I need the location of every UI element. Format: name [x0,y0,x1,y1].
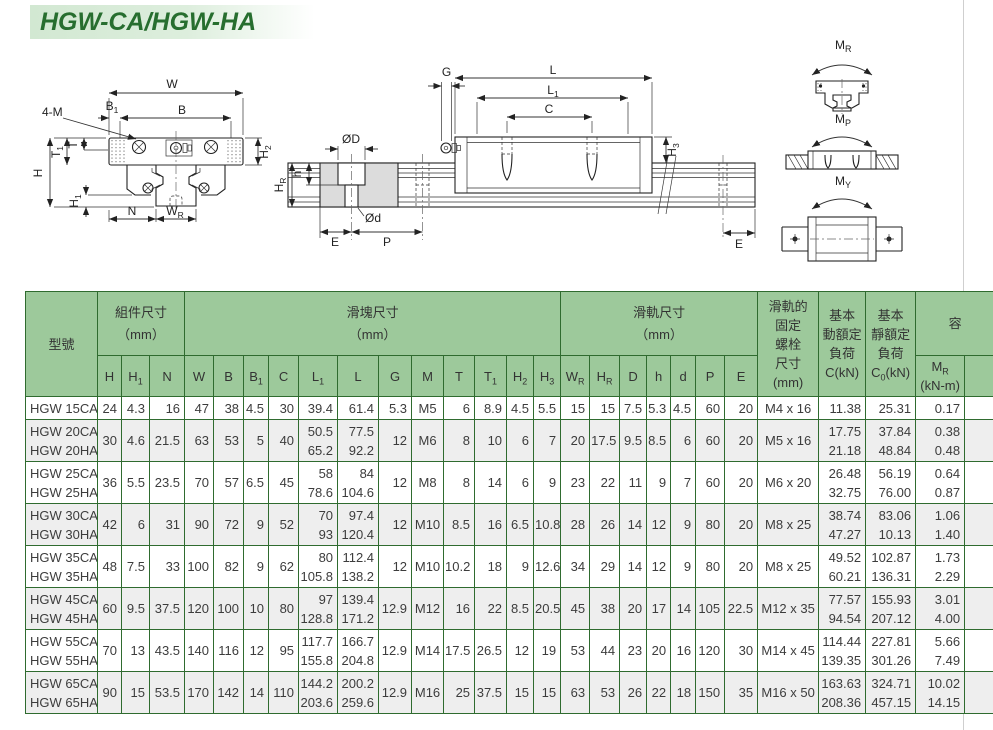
cell-dim: 9 [244,546,269,588]
cell-dim: 50.565.2 [299,420,338,462]
dim-label-n: N [128,204,137,218]
cell-dim: 52 [269,504,299,546]
cell-dim: 17.5 [444,630,475,672]
cell-dim: 53.5 [150,672,185,714]
cell-dim: 53 [561,630,590,672]
dim-label-b: B [178,103,186,117]
cell-dynamic-load: 114.44139.35 [819,630,866,672]
cell-dim: 62 [269,546,299,588]
grease-nipple-icon [166,140,192,156]
cell-dim: 34 [561,546,590,588]
side-view-drawing: G L L1 C H3 ØD h HR Ød E P E [275,50,780,265]
cell-bolt: M8 x 25 [758,546,819,588]
cell-dim: 90 [98,672,122,714]
cell-dim: 70 [98,630,122,672]
cell-dim: 15 [590,397,620,420]
column-header: M [412,356,444,397]
cell-dim: 17.5 [590,420,620,462]
cell-dim: 45 [269,462,299,504]
cell-dim: 33 [150,546,185,588]
page-title: HGW-CA/HGW-HA [30,8,256,37]
block-cross-section [109,131,243,211]
cell-dim: M16 [412,672,444,714]
cell-dim: 4.5 [671,397,696,420]
cell-moment-mr: 0.640.87 [916,462,965,504]
cell-cut [965,546,993,588]
cell-dim: 14 [620,504,647,546]
header-assembly-group: 組件尺寸（mm） [98,292,185,356]
cell-dim: 15 [561,397,590,420]
cell-dim: M14 [412,630,444,672]
cell-dim: 48 [98,546,122,588]
cell-model: HGW 25CAHGW 25HA [26,462,98,504]
spec-table: 型號 組件尺寸（mm） 滑塊尺寸（mm） 滑軌尺寸（mm） 滑軌的固定 螺栓尺寸… [25,291,993,714]
cell-dim: 26 [620,672,647,714]
table-row: HGW 25CAHGW 25HA365.523.570576.5455878.6… [26,462,993,504]
header-group-row: 型號 組件尺寸（mm） 滑塊尺寸（mm） 滑軌尺寸（mm） 滑軌的固定 螺栓尺寸… [26,292,993,356]
cell-dim: 4.6 [122,420,150,462]
cell-dim: 7 [534,420,561,462]
dim-label-e-right: E [735,237,743,251]
cell-dim: 8.5 [507,588,534,630]
cell-dim: 18 [475,546,507,588]
header-moment-group: 容 [916,292,993,356]
cell-dim: 22 [590,462,620,504]
dim-label-g: G [442,65,451,79]
cell-dim: 43.5 [150,630,185,672]
cell-dim: M10 [412,546,444,588]
cell-dim: 16 [671,630,696,672]
header-dynamic-load: 基本動額定 負荷C(kN) [819,292,866,397]
cell-dim: 9.5 [122,588,150,630]
cell-dim: 77.592.2 [338,420,379,462]
cell-moment-mr: 1.732.29 [916,546,965,588]
cell-dim: 10 [475,420,507,462]
cell-bolt: M8 x 25 [758,504,819,546]
cell-dim: 20 [620,588,647,630]
cell-dim: 14 [475,462,507,504]
cell-dim: 20 [725,546,758,588]
cell-dim: 57 [214,462,244,504]
cell-dim: 20.5 [534,588,561,630]
cell-cut [965,630,993,672]
cell-dim: 4.3 [122,397,150,420]
cell-dynamic-load: 38.7447.27 [819,504,866,546]
cell-dim: 70 [185,462,214,504]
cell-dim: 6 [671,420,696,462]
cell-static-load: 155.93207.12 [866,588,916,630]
cell-dim: 12 [647,546,671,588]
cell-dim: 95 [269,630,299,672]
cell-dim: 6.5 [244,462,269,504]
table-row: HGW 15CA244.31647384.53039.461.45.3M568.… [26,397,993,420]
cell-dim: 24 [98,397,122,420]
cell-dim: 9 [534,462,561,504]
column-header: H1 [122,356,150,397]
cell-dim: 21.5 [150,420,185,462]
dim-label-l1: L1 [547,83,559,99]
cell-bolt: M6 x 20 [758,462,819,504]
column-header-mr: MR(kN-m) [916,356,965,397]
cell-dim: 80 [696,546,725,588]
cell-dim: 26 [590,504,620,546]
cell-dim: 44 [590,630,620,672]
cell-dim: 20 [725,462,758,504]
cell-bolt: M16 x 50 [758,672,819,714]
cell-dim: 8.9 [475,397,507,420]
cell-dim: 36 [98,462,122,504]
cell-dim: 9 [671,546,696,588]
cell-dim: 5878.6 [299,462,338,504]
dim-label-dia-d-small: Ød [365,211,381,225]
cell-dim: 9 [244,504,269,546]
cell-dim: 97128.8 [299,588,338,630]
cell-dynamic-load: 17.7521.18 [819,420,866,462]
cell-dim: 25 [444,672,475,714]
cell-dim: 12.9 [379,588,412,630]
cell-dim: 13 [122,630,150,672]
cell-dim: 20 [725,420,758,462]
cell-moment-mr: 0.380.48 [916,420,965,462]
column-header: H2 [507,356,534,397]
cell-dim: 144.2203.6 [299,672,338,714]
cell-dim: 112.4138.2 [338,546,379,588]
cell-dim: 37.5 [475,672,507,714]
cell-dim: 16 [150,397,185,420]
moment-my-diagram: MY [782,174,902,261]
cell-dim: 45 [561,588,590,630]
cell-static-load: 324.71457.15 [866,672,916,714]
cell-dim: 6 [507,462,534,504]
column-header: H [98,356,122,397]
cell-dim: 7 [671,462,696,504]
column-header: B1 [244,356,269,397]
dim-label-b1: B1 [106,99,119,115]
cell-model: HGW 20CAHGW 20HA [26,420,98,462]
cell-cut [965,672,993,714]
cell-dim: 22.5 [725,588,758,630]
dim-label-p: P [383,235,391,249]
cell-dim: 12 [379,420,412,462]
cell-dim: 80 [269,588,299,630]
dim-label-l: L [550,63,557,77]
cell-dim: 20 [561,420,590,462]
cell-dim: 11 [620,462,647,504]
title-bar: HGW-CA/HGW-HA [30,5,315,39]
rail-section-cut [320,154,398,240]
column-header: L1 [299,356,338,397]
cell-bolt: M4 x 16 [758,397,819,420]
cell-dim: 150 [696,672,725,714]
cell-dim: 23.5 [150,462,185,504]
cell-dim: M8 [412,462,444,504]
cell-dim: 10 [244,588,269,630]
cell-dim: 39.4 [299,397,338,420]
cell-dim: 6 [444,397,475,420]
cell-static-load: 227.81301.26 [866,630,916,672]
cell-dim: 12 [379,504,412,546]
moment-mp-label: MP [835,112,851,128]
cell-dim: 120 [185,588,214,630]
column-header: h [647,356,671,397]
cell-dim: 80105.8 [299,546,338,588]
cell-dynamic-load: 49.5260.21 [819,546,866,588]
front-view-drawing: W B B1 4-M H T1 T H1 H2 N WR [20,58,270,253]
cell-cut [965,420,993,462]
block-side [441,137,652,193]
cell-dim: 20 [725,397,758,420]
table-row: HGW 20CAHGW 20HA304.621.5635354050.565.2… [26,420,993,462]
cell-dim: 53 [590,672,620,714]
cell-model: HGW 45CAHGW 45HA [26,588,98,630]
cell-dynamic-load: 26.4832.75 [819,462,866,504]
column-header: C [269,356,299,397]
cell-dim: 22 [475,588,507,630]
cell-cut [965,504,993,546]
dim-label-t: T [66,141,80,149]
dim-label-dia-d: ØD [342,132,360,146]
cell-dim: 170 [185,672,214,714]
cell-dim: 60 [696,397,725,420]
table-row: HGW 30CAHGW 30HA426319072952709397.4120.… [26,504,993,546]
column-header: T [444,356,475,397]
cell-model: HGW 55CAHGW 55HA [26,630,98,672]
cell-moment-mr: 0.17 [916,397,965,420]
column-header: H3 [534,356,561,397]
cell-dim: 110 [269,672,299,714]
break-marks [658,156,676,214]
front-dimensions: W B B1 4-M H T1 T H1 H2 N WR [31,77,273,222]
cell-dim: 23 [561,462,590,504]
cell-dim: 100 [214,588,244,630]
column-header: B [214,356,244,397]
cell-dim: 166.7204.8 [338,630,379,672]
dim-label-w: W [166,77,178,91]
cell-dim: 42 [98,504,122,546]
cell-moment-mr: 1.061.40 [916,504,965,546]
column-header: WR [561,356,590,397]
moment-mp-diagram: MP [786,112,898,169]
cell-dim: 14 [244,672,269,714]
cell-dim: 4.5 [244,397,269,420]
cell-dim: 31 [150,504,185,546]
cell-cut [965,462,993,504]
cell-dim: 116 [214,630,244,672]
cell-dim: 12.9 [379,630,412,672]
cell-dim: 4.5 [507,397,534,420]
cell-dim: M10 [412,504,444,546]
dim-label-e-left: E [331,235,339,249]
cell-dim: 6 [507,420,534,462]
cell-dim: 19 [534,630,561,672]
cell-dim: 8 [444,462,475,504]
cell-dim: 14 [671,588,696,630]
cell-dim: 60 [98,588,122,630]
cell-dim: 35 [725,672,758,714]
cell-static-load: 25.31 [866,397,916,420]
spec-table-container: 型號 組件尺寸（mm） 滑塊尺寸（mm） 滑軌尺寸（mm） 滑軌的固定 螺栓尺寸… [25,291,993,714]
cell-dim: 9 [647,462,671,504]
table-row: HGW 65CAHGW 65HA901553.517014214110144.2… [26,672,993,714]
cell-dim: 105 [696,588,725,630]
cell-dim: 12.6 [534,546,561,588]
cell-dim: 8.5 [647,420,671,462]
cell-dim: 30 [269,397,299,420]
cell-dim: 12 [244,630,269,672]
cell-dim: 12 [379,546,412,588]
cell-static-load: 37.8448.84 [866,420,916,462]
cell-dim: 10.2 [444,546,475,588]
cell-dim: 20 [725,504,758,546]
dim-label-h1: H1 [67,194,83,208]
cell-dim: 200.2259.6 [338,672,379,714]
cell-bolt: M12 x 35 [758,588,819,630]
cell-dim: 117.7155.8 [299,630,338,672]
cell-dim: M5 [412,397,444,420]
column-header: W [185,356,214,397]
cell-dim: 139.4171.2 [338,588,379,630]
cell-dim: M6 [412,420,444,462]
column-header: P [696,356,725,397]
cell-dim: 7093 [299,504,338,546]
cell-dim: 12 [647,504,671,546]
cell-dim: 60 [696,462,725,504]
column-header: G [379,356,412,397]
cell-dim: M12 [412,588,444,630]
cell-dim: 40 [269,420,299,462]
cell-dim: 38 [214,397,244,420]
cell-dim: 20 [647,630,671,672]
cell-static-load: 83.0610.13 [866,504,916,546]
cell-cut [965,588,993,630]
cell-dim: 72 [214,504,244,546]
cell-dim: 17 [647,588,671,630]
header-model: 型號 [26,292,98,397]
cell-dim: 12 [507,630,534,672]
cell-dim: 37.5 [150,588,185,630]
column-header: HR [590,356,620,397]
cell-dim: 9.5 [620,420,647,462]
column-header: L [338,356,379,397]
cell-dim: 6.5 [507,504,534,546]
cell-dim: 80 [696,504,725,546]
cell-dim: 8.5 [444,504,475,546]
header-bolt: 滑軌的固定 螺栓尺寸 (mm) [758,292,819,397]
cell-dim: 15 [122,672,150,714]
cell-dim: 82 [214,546,244,588]
cell-dim: 7.5 [620,397,647,420]
cell-model: HGW 30CAHGW 30HA [26,504,98,546]
dim-label-c: C [545,102,554,116]
cell-model: HGW 65CAHGW 65HA [26,672,98,714]
cell-dim: 53 [214,420,244,462]
cell-dim: 142 [214,672,244,714]
cell-moment-mr: 10.0214.15 [916,672,965,714]
cell-cut [965,397,993,420]
cell-dim: 9 [507,546,534,588]
cell-dynamic-load: 77.5794.54 [819,588,866,630]
cell-dim: 26.5 [475,630,507,672]
cell-dynamic-load: 163.63208.36 [819,672,866,714]
cell-moment-mr: 5.667.49 [916,630,965,672]
cell-dim: 90 [185,504,214,546]
cell-dim: 5 [244,420,269,462]
catalog-page: { "page": { "title": "HGW-CA/HGW-HA" }, … [0,0,993,730]
cell-dim: 140 [185,630,214,672]
table-row: HGW 45CAHGW 45HA609.537.5120100108097128… [26,588,993,630]
column-header: D [620,356,647,397]
cell-bolt: M14 x 45 [758,630,819,672]
moment-my-label: MY [835,174,851,190]
cell-dim: 5.3 [647,397,671,420]
cell-dim: 16 [444,588,475,630]
column-header: d [671,356,696,397]
table-row: HGW 55CAHGW 55HA701343.51401161295117.71… [26,630,993,672]
cell-dim: 7.5 [122,546,150,588]
cell-dim: 8 [444,420,475,462]
dim-label-h2: H2 [257,145,273,159]
cell-dim: 18 [671,672,696,714]
cell-dim: 15 [534,672,561,714]
header-block-group: 滑塊尺寸（mm） [185,292,561,356]
cell-dim: 9 [671,504,696,546]
cell-dim: 63 [185,420,214,462]
cell-bolt: M5 x 16 [758,420,819,462]
column-header-cut [965,356,993,397]
dim-label-4m: 4-M [42,105,63,119]
column-header: E [725,356,758,397]
cell-moment-mr: 3.014.00 [916,588,965,630]
cell-dim: 12 [379,462,412,504]
cell-dim: 84104.6 [338,462,379,504]
cell-static-load: 56.1976.00 [866,462,916,504]
cell-dim: 28 [561,504,590,546]
cell-dim: 30 [98,420,122,462]
dim-label-hr: HR [272,178,288,193]
cell-dim: 60 [696,420,725,462]
column-header: N [150,356,185,397]
dim-label-t1: T1 [49,146,65,158]
cell-dim: 22 [647,672,671,714]
mounting-bolt-icon [133,141,218,194]
header-static-load: 基本靜額定 負荷 C0(kN) [866,292,916,397]
cell-model: HGW 15CA [26,397,98,420]
cell-dim: 63 [561,672,590,714]
cell-dynamic-load: 11.38 [819,397,866,420]
cell-dim: 5.5 [534,397,561,420]
cell-dim: 30 [725,630,758,672]
column-header: T1 [475,356,507,397]
cell-dim: 61.4 [338,397,379,420]
cell-dim: 47 [185,397,214,420]
cell-dim: 38 [590,588,620,630]
cell-dim: 23 [620,630,647,672]
table-row: HGW 35CAHGW 35HA487.5331008296280105.811… [26,546,993,588]
cell-dim: 100 [185,546,214,588]
cell-dim: 120 [696,630,725,672]
header-rail-group: 滑軌尺寸（mm） [561,292,758,356]
cell-dim: 16 [475,504,507,546]
cell-model: HGW 35CAHGW 35HA [26,546,98,588]
cell-dim: 6 [122,504,150,546]
cell-dim: 14 [620,546,647,588]
cell-dim: 5.5 [122,462,150,504]
dim-label-h: H [31,169,45,178]
cell-static-load: 102.87136.31 [866,546,916,588]
cell-dim: 15 [507,672,534,714]
cell-dim: 5.3 [379,397,412,420]
moment-mr-label: MR [835,38,852,54]
